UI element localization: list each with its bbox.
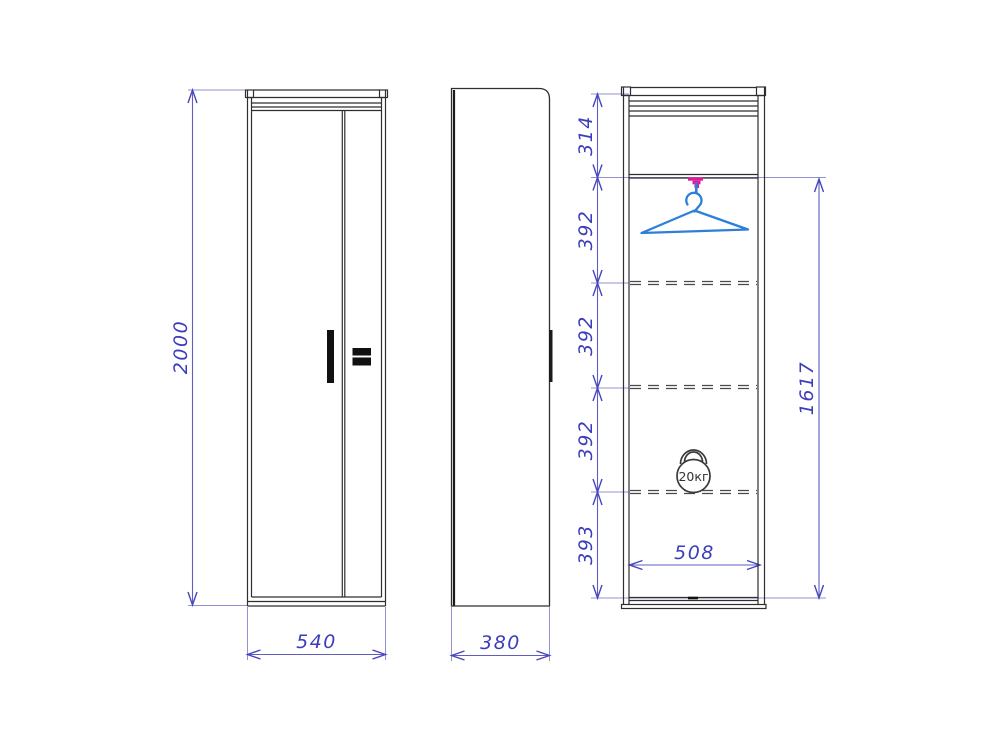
top-shelf <box>629 175 758 179</box>
hanger-icon <box>642 183 749 233</box>
front-view <box>246 90 388 606</box>
side-view <box>452 89 553 607</box>
section-view <box>622 87 767 609</box>
technical-drawing: 20кг 2000 540 380 314 392 392 392 393 50… <box>0 0 1000 750</box>
kettlebell-icon: 20кг <box>677 450 710 492</box>
side-handle <box>549 330 553 382</box>
front-height-value: 2000 <box>170 320 192 374</box>
segment-393-value: 393 <box>575 524 597 565</box>
segment-314-value: 314 <box>575 115 597 156</box>
load-capacity-label: 20кг <box>678 469 708 484</box>
left-door-handle <box>327 330 334 383</box>
section-bottom-band <box>622 605 767 609</box>
segment-392b-value: 392 <box>575 315 597 356</box>
front-width-value: 540 <box>296 631 337 653</box>
segment-392a-value: 392 <box>575 210 597 251</box>
inner-height-value: 1617 <box>796 361 818 415</box>
front-left-cap <box>246 90 254 98</box>
technical-drawing-canvas: 20кг 2000 540 380 314 392 392 392 393 50… <box>0 0 1000 750</box>
right-door-handle <box>353 348 372 356</box>
inner-width-value: 508 <box>674 542 715 564</box>
front-right-cap <box>380 90 388 98</box>
segment-392c-value: 392 <box>575 420 597 461</box>
side-depth-value: 380 <box>480 632 521 654</box>
